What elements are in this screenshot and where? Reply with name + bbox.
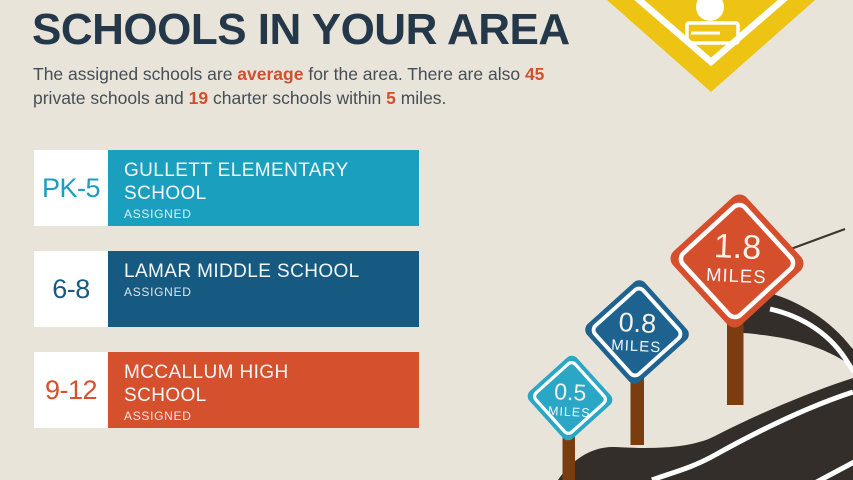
school-card-body: MCCALLUM HIGH SCHOOL ASSIGNED xyxy=(108,352,419,428)
school-list: PK-5 GULLETT ELEMENTARY SCHOOL ASSIGNED … xyxy=(34,150,419,453)
distant-road-line xyxy=(788,229,845,250)
subtitle-line-1: The assigned schools are average for the… xyxy=(33,63,613,87)
school-card-elementary: PK-5 GULLETT ELEMENTARY SCHOOL ASSIGNED xyxy=(34,150,419,226)
distance-sign-0-5: 0.5 MILES xyxy=(522,350,617,445)
subtitle-text: The assigned schools are xyxy=(33,64,237,84)
page-title: SCHOOLS IN YOUR AREA xyxy=(32,6,570,54)
distance-value: 0.8 xyxy=(618,307,657,339)
page-subtitle: The assigned schools are average for the… xyxy=(33,63,613,110)
subtitle-highlight: 5 xyxy=(386,88,396,108)
distance-unit: MILES xyxy=(611,337,662,357)
subtitle-text: miles. xyxy=(396,88,447,108)
infographic-schools-in-your-area: 0.5 MILES 0.8 MILES 1.8 MILES SCHOOLS IN… xyxy=(0,0,853,480)
school-card-middle: 6-8 LAMAR MIDDLE SCHOOL ASSIGNED xyxy=(34,251,419,327)
subtitle-highlight: 19 xyxy=(189,88,208,108)
distance-sign-0-8: 0.8 MILES xyxy=(579,274,695,390)
distance-unit: MILES xyxy=(548,404,591,420)
school-name: GULLETT ELEMENTARY SCHOOL xyxy=(124,159,376,205)
distance-value: 0.5 xyxy=(554,378,587,406)
subtitle-highlight: average xyxy=(237,64,303,84)
school-card-high: 9-12 MCCALLUM HIGH SCHOOL ASSIGNED xyxy=(34,352,419,428)
distance-value: 1.8 xyxy=(713,227,762,267)
school-status: ASSIGNED xyxy=(124,285,405,299)
school-name: LAMAR MIDDLE SCHOOL xyxy=(124,260,376,283)
grade-range-badge: 9-12 xyxy=(34,352,108,428)
distance-unit: MILES xyxy=(706,264,767,288)
subtitle-text: charter schools within xyxy=(208,88,386,108)
grade-range-badge: 6-8 xyxy=(34,251,108,327)
subtitle-text: for the area. There are also xyxy=(303,64,524,84)
subtitle-line-2: private schools and 19 charter schools w… xyxy=(33,87,613,111)
school-status: ASSIGNED xyxy=(124,207,405,221)
grade-range-badge: PK-5 xyxy=(34,150,108,226)
school-name: MCCALLUM HIGH SCHOOL xyxy=(124,361,376,407)
subtitle-highlight: 45 xyxy=(525,64,544,84)
school-zone-sign xyxy=(607,0,815,92)
subtitle-text: private schools and xyxy=(33,88,189,108)
school-card-body: LAMAR MIDDLE SCHOOL ASSIGNED xyxy=(108,251,419,327)
school-card-body: GULLETT ELEMENTARY SCHOOL ASSIGNED xyxy=(108,150,419,226)
school-status: ASSIGNED xyxy=(124,409,405,423)
